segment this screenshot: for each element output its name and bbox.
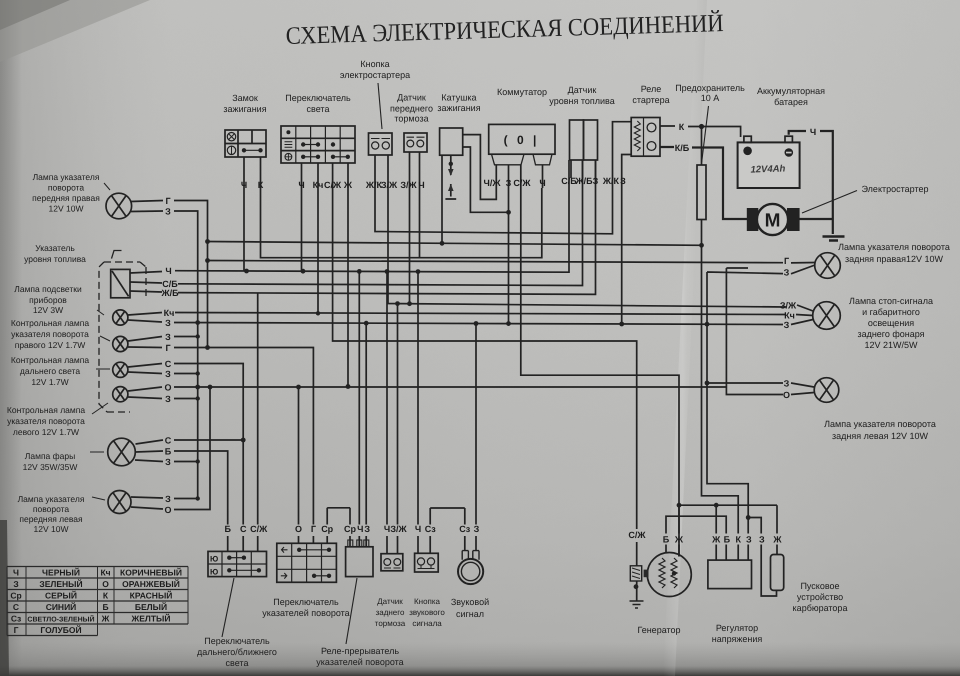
svg-text:указателя поворота: указателя поворота — [7, 416, 85, 426]
svg-text:Лампа указателя поворота: Лампа указателя поворота — [824, 419, 936, 429]
svg-text:З: З — [784, 379, 790, 389]
svg-text:Переключатель: Переключатель — [285, 93, 351, 103]
svg-text:З: З — [474, 524, 480, 534]
svg-text:заднего: заднего — [376, 608, 405, 617]
svg-text:Ж: Ж — [772, 535, 782, 545]
svg-text:З/Ж: З/Ж — [400, 180, 417, 190]
svg-text:Г: Г — [14, 625, 19, 635]
svg-text:электростартера: электростартера — [340, 70, 410, 80]
svg-text:приборов: приборов — [29, 295, 67, 305]
svg-text:12V 1.7W: 12V 1.7W — [31, 377, 68, 387]
svg-text:12V 10W: 12V 10W — [49, 204, 84, 214]
svg-text:указателей поворота: указателей поворота — [262, 608, 349, 618]
svg-text:Б: Б — [224, 524, 231, 534]
svg-text:задняя правая12V 10W: задняя правая12V 10W — [845, 254, 944, 264]
svg-text:Переключатель: Переключатель — [273, 597, 339, 607]
svg-text:З/Ж: З/Ж — [780, 301, 797, 311]
svg-text:Контрольная лампа: Контрольная лампа — [11, 355, 89, 365]
svg-text:Г: Г — [784, 256, 789, 266]
svg-text:дальнего/ближнего: дальнего/ближнего — [197, 647, 277, 657]
svg-text:С/Ж: С/Ж — [628, 530, 646, 540]
svg-text:Ч: Ч — [298, 180, 304, 190]
svg-text:З: З — [746, 535, 752, 545]
svg-text:З: З — [759, 535, 765, 545]
svg-text:З: З — [165, 369, 171, 379]
svg-text:Пусковое: Пусковое — [800, 581, 839, 591]
svg-text:12V 35W/35W: 12V 35W/35W — [23, 462, 78, 472]
svg-text:освещения: освещения — [868, 318, 914, 328]
svg-text:правого 12V 1.7W: правого 12V 1.7W — [15, 340, 86, 350]
svg-text:заднего фонаря: заднего фонаря — [857, 329, 924, 339]
svg-text:света: света — [307, 104, 330, 114]
svg-text:( 0 |: ( 0 | — [504, 133, 540, 147]
svg-text:Датчик: Датчик — [377, 597, 403, 606]
svg-text:Ч/Ж: Ч/Ж — [484, 178, 502, 188]
svg-text:Коммутатор: Коммутатор — [497, 87, 547, 97]
svg-text:Ж/Б: Ж/Б — [574, 176, 593, 186]
svg-text:С: С — [165, 359, 172, 369]
svg-text:Лампа подсветки: Лампа подсветки — [14, 284, 82, 294]
svg-text:Б: Б — [102, 602, 108, 612]
svg-text:З: З — [13, 579, 18, 589]
svg-text:З: З — [165, 457, 171, 467]
svg-text:Переключатель: Переключатель — [204, 636, 270, 646]
svg-text:звукового: звукового — [409, 608, 445, 617]
svg-text:Ср: Ср — [10, 591, 21, 601]
svg-text:Датчик: Датчик — [568, 85, 597, 95]
svg-text:поворота: поворота — [33, 504, 70, 514]
svg-text:К: К — [258, 180, 264, 190]
svg-text:Г: Г — [311, 524, 316, 534]
svg-text:Ж: Ж — [343, 180, 353, 190]
svg-text:батарея: батарея — [774, 97, 808, 107]
svg-text:Замок: Замок — [232, 93, 258, 103]
svg-text:уровня топлива: уровня топлива — [549, 96, 614, 106]
svg-text:З: З — [364, 524, 370, 534]
svg-text:левого 12V 1.7W: левого 12V 1.7W — [13, 427, 79, 437]
svg-text:Г: Г — [165, 196, 170, 206]
svg-text:поворота: поворота — [48, 183, 85, 193]
svg-text:Предохранитель: Предохранитель — [675, 83, 745, 93]
svg-text:зажигания: зажигания — [223, 104, 266, 114]
svg-text:стартера: стартера — [632, 95, 669, 105]
svg-text:Ч: Ч — [241, 180, 247, 190]
svg-text:Ж: Ж — [674, 535, 684, 545]
svg-text:Ч: Ч — [415, 524, 421, 534]
svg-text:З: З — [165, 494, 171, 504]
svg-text:указателей поворота: указателей поворота — [316, 657, 403, 667]
svg-text:Реле: Реле — [641, 84, 662, 94]
svg-text:Аккумуляторная: Аккумуляторная — [757, 86, 825, 96]
svg-text:ЖЕЛТЫЙ: ЖЕЛТЫЙ — [131, 614, 171, 624]
svg-text:Указатель: Указатель — [35, 243, 75, 253]
svg-text:Ж: Ж — [101, 614, 110, 624]
svg-text:12V 10W: 12V 10W — [34, 524, 69, 534]
svg-text:задняя левая 12V 10W: задняя левая 12V 10W — [832, 431, 928, 441]
svg-text:С: С — [165, 436, 172, 446]
svg-text:Ю: Ю — [210, 555, 218, 564]
svg-text:Лампа указателя: Лампа указателя — [33, 172, 100, 182]
svg-text:С/Ж: С/Ж — [250, 524, 268, 534]
svg-text:Датчик: Датчик — [397, 93, 426, 103]
svg-text:КРАСНЫЙ: КРАСНЫЙ — [130, 591, 173, 601]
svg-text:Регулятор: Регулятор — [716, 623, 758, 633]
svg-text:Г: Г — [165, 343, 170, 353]
svg-text:переднего: переднего — [390, 103, 433, 113]
svg-text:З/Ж: З/Ж — [390, 524, 407, 534]
svg-text:З: З — [506, 178, 512, 188]
svg-text:Электростартер: Электростартер — [862, 184, 929, 194]
svg-text:Ж/Б: Ж/Б — [160, 288, 179, 298]
svg-text:12V 3W: 12V 3W — [33, 305, 63, 315]
svg-text:О: О — [164, 383, 171, 393]
svg-text:передняя правая: передняя правая — [32, 193, 100, 203]
svg-text:Звуковой: Звуковой — [451, 597, 489, 607]
svg-text:Сз: Сз — [425, 524, 436, 534]
svg-text:ЗЕЛЕНЫЙ: ЗЕЛЕНЫЙ — [39, 579, 82, 589]
svg-text:С/Ж: С/Ж — [513, 178, 531, 188]
svg-text:Б: Б — [663, 535, 670, 545]
svg-text:Контрольная лампа: Контрольная лампа — [11, 318, 89, 328]
svg-text:Кч: Кч — [313, 180, 324, 190]
svg-text:О: О — [102, 579, 109, 589]
svg-text:Ч: Ч — [165, 266, 171, 276]
svg-text:СЕРЫЙ: СЕРЫЙ — [45, 591, 77, 601]
svg-text:Ср: Ср — [344, 524, 356, 534]
svg-text:Б: Б — [724, 535, 731, 545]
svg-text:ГОЛУБОЙ: ГОЛУБОЙ — [40, 625, 81, 635]
svg-text:Лампа указателя: Лампа указателя — [18, 494, 85, 504]
svg-text:Лампа стоп-сигнала: Лампа стоп-сигнала — [849, 296, 933, 306]
svg-text:зажигания: зажигания — [437, 103, 480, 113]
svg-text:О: О — [295, 524, 302, 534]
svg-text:Лампа указателя поворота: Лампа указателя поворота — [838, 242, 950, 252]
svg-text:С: С — [240, 524, 247, 534]
svg-text:Генератор: Генератор — [637, 625, 680, 635]
svg-text:Кч: Кч — [784, 311, 795, 321]
svg-text:Б: Б — [165, 447, 172, 457]
svg-text:З: З — [165, 332, 171, 342]
svg-text:СВЕТЛО-ЗЕЛЕНЫЙ: СВЕТЛО-ЗЕЛЕНЫЙ — [27, 615, 94, 624]
svg-text:К: К — [103, 591, 109, 601]
svg-text:Сз: Сз — [459, 524, 470, 534]
svg-text:Кнопка: Кнопка — [360, 59, 389, 69]
svg-text:12V4Ah: 12V4Ah — [750, 163, 785, 175]
svg-text:З: З — [165, 318, 171, 328]
svg-text:тормоза: тормоза — [375, 619, 406, 628]
svg-text:З: З — [784, 268, 790, 278]
svg-text:12V 21W/5W: 12V 21W/5W — [864, 340, 918, 350]
svg-text:сигнала: сигнала — [412, 619, 442, 628]
svg-text:сигнал: сигнал — [456, 609, 484, 619]
svg-text:З: З — [620, 176, 626, 186]
svg-text:К: К — [735, 535, 741, 545]
svg-text:Ч: Ч — [357, 524, 363, 534]
svg-text:Ч: Ч — [384, 524, 390, 534]
svg-text:Контрольная лампа: Контрольная лампа — [7, 405, 85, 415]
svg-text:БЕЛЫЙ: БЕЛЫЙ — [135, 602, 167, 612]
svg-text:О: О — [164, 505, 171, 515]
svg-text:10 А: 10 А — [701, 93, 720, 103]
svg-text:Кнопка: Кнопка — [414, 597, 441, 606]
svg-text:Ч: Ч — [539, 178, 545, 188]
svg-text:Реле-прерыватель: Реле-прерыватель — [321, 646, 399, 656]
svg-text:указателя поворота: указателя поворота — [11, 329, 89, 339]
svg-text:З: З — [165, 394, 171, 404]
svg-text:передняя левая: передняя левая — [19, 514, 83, 524]
svg-text:и габаритного: и габаритного — [862, 307, 920, 317]
svg-text:Ч: Ч — [13, 568, 19, 578]
svg-text:К/Б: К/Б — [675, 143, 690, 153]
svg-text:Ср: Ср — [321, 524, 333, 534]
svg-text:устройство: устройство — [797, 592, 843, 602]
svg-text:О: О — [783, 390, 790, 400]
svg-text:тормоза: тормоза — [394, 114, 428, 124]
svg-text:К: К — [679, 122, 685, 132]
svg-text:Кч: Кч — [100, 568, 110, 578]
svg-text:Ю: Ю — [210, 568, 218, 577]
svg-text:Сз: Сз — [11, 614, 21, 624]
svg-text:С: С — [13, 602, 19, 612]
svg-text:уровня топлива: уровня топлива — [24, 254, 86, 264]
svg-text:Ж/К: Ж/К — [602, 176, 620, 186]
svg-text:КОРИЧНЕВЫЙ: КОРИЧНЕВЫЙ — [120, 568, 182, 578]
svg-text:ОРАНЖЕВЫЙ: ОРАНЖЕВЫЙ — [122, 579, 180, 589]
svg-text:Лампа фары: Лампа фары — [25, 451, 75, 461]
svg-text:карбюратора: карбюратора — [793, 603, 848, 613]
svg-text:СИНИЙ: СИНИЙ — [46, 602, 77, 612]
svg-text:З: З — [784, 320, 790, 330]
svg-text:С/Ж: С/Ж — [324, 180, 342, 190]
svg-text:напряжения: напряжения — [712, 634, 763, 644]
svg-text:Кч: Кч — [164, 308, 175, 318]
svg-text:Ж: Ж — [711, 535, 721, 545]
svg-text:Ч: Ч — [418, 180, 424, 190]
svg-text:света: света — [226, 658, 249, 668]
svg-text:З/Ж: З/Ж — [381, 180, 398, 190]
svg-text:З: З — [165, 207, 171, 217]
svg-text:Катушка: Катушка — [441, 93, 476, 103]
svg-text:дальнего света: дальнего света — [20, 366, 80, 376]
svg-text:З: З — [593, 176, 599, 186]
svg-text:M: M — [765, 211, 781, 232]
svg-text:ЧЕРНЫЙ: ЧЕРНЫЙ — [42, 568, 80, 578]
svg-text:Ч: Ч — [810, 127, 816, 137]
